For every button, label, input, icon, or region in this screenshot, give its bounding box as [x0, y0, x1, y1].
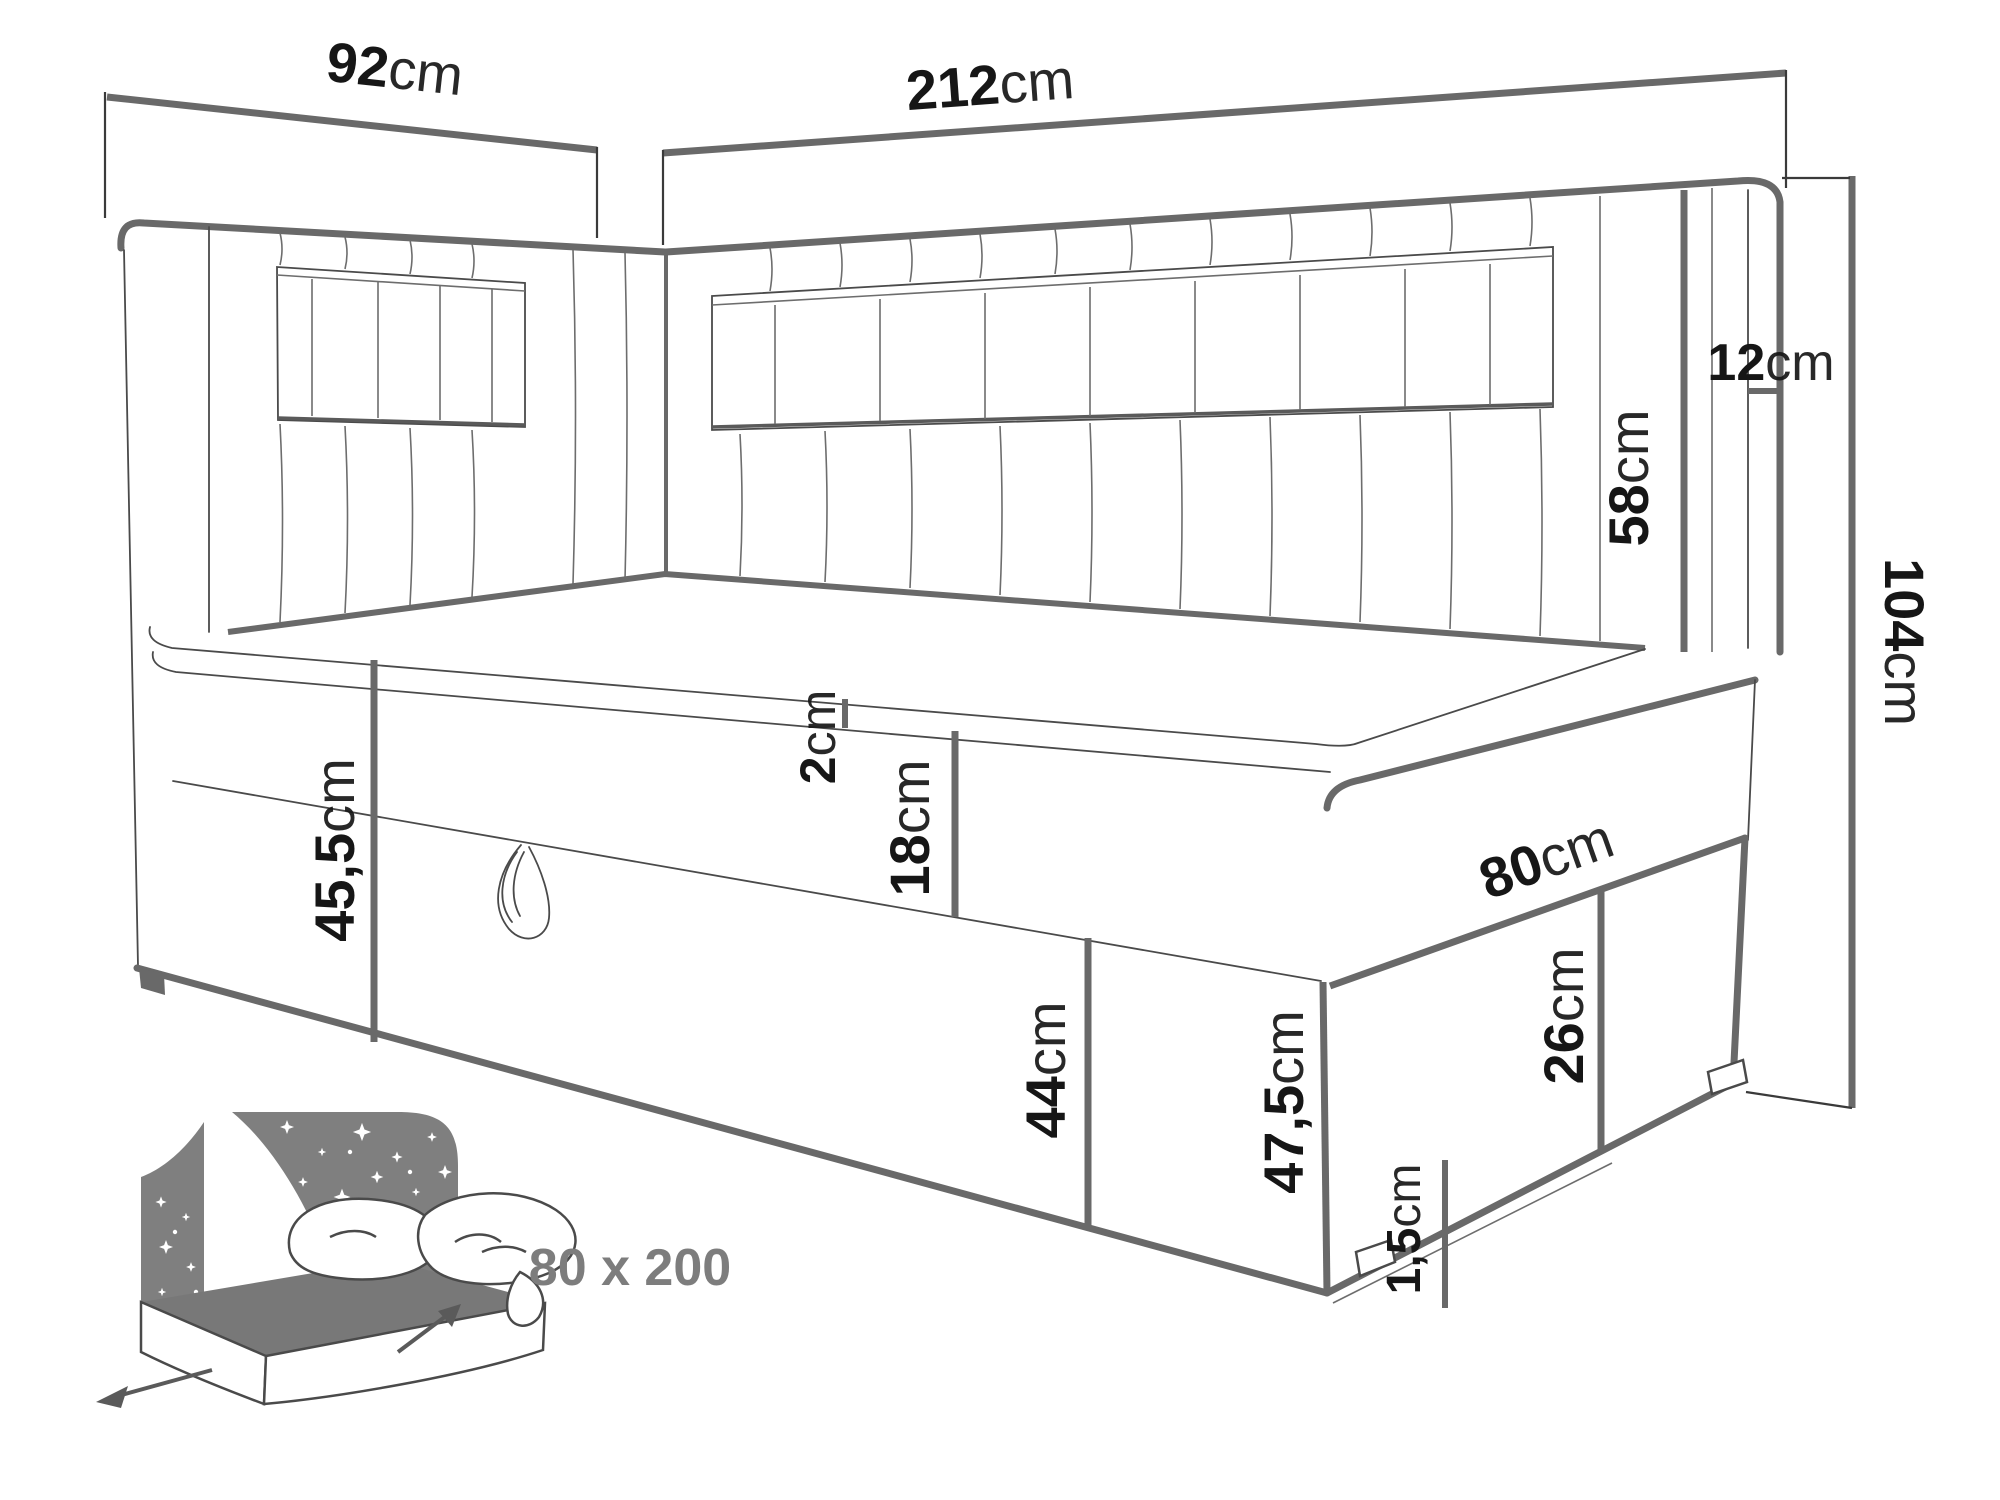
dimension-label-58cm: 58cm — [1597, 410, 1660, 547]
dimension-label-212cm: 212cm — [904, 46, 1076, 121]
size-badge: 80 x 200 — [529, 1239, 731, 1297]
left-headboard-shelf — [277, 267, 525, 427]
back-headboard-shelf — [712, 247, 1553, 430]
dimension-label-1-5cm: 1,5cm — [1378, 1164, 1431, 1295]
dimension-label-26cm: 26cm — [1532, 948, 1595, 1085]
dimension-label-47-5cm: 47,5cm — [1252, 1010, 1315, 1194]
dimension-label-44cm: 44cm — [1014, 1002, 1077, 1139]
dimension-label-104cm: 104cm — [1874, 558, 1937, 726]
dimension-label-12cm: 12cm — [1707, 334, 1834, 392]
drawer-handle-icon — [498, 845, 549, 939]
dimension-label-18cm: 18cm — [878, 760, 941, 897]
bed-dimension-diagram: 92cm 212cm 12cm 58cm 104cm 45,5cm 2cm 18… — [0, 0, 2000, 1500]
icon-width-arrow — [96, 1370, 212, 1408]
left-headboard — [121, 223, 666, 966]
dimension-label-45-5cm: 45,5cm — [303, 758, 366, 942]
dimension-label-92cm: 92cm — [324, 29, 467, 106]
bed-leg — [1708, 1060, 1747, 1094]
dimension-label-2cm: 2cm — [790, 690, 846, 784]
bed-size-pictogram — [96, 1112, 575, 1408]
